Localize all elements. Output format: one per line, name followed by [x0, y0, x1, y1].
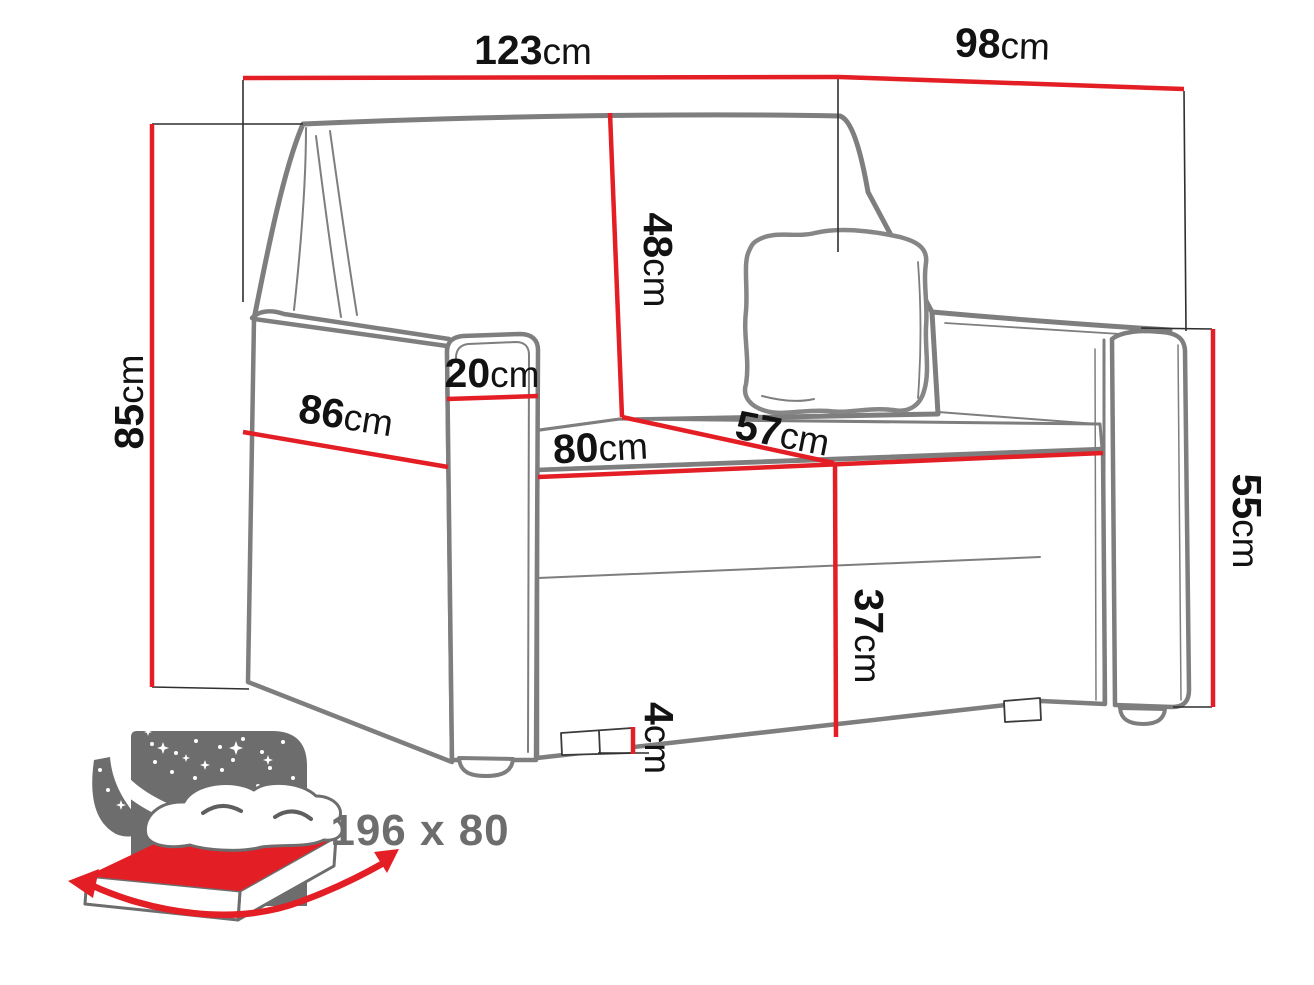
dimension-label-armrest-width: 20cm — [445, 350, 540, 396]
dim-line-total-width — [243, 77, 839, 78]
sofa-line-art — [248, 115, 1189, 776]
bed-size-label: 196 x 80 — [330, 806, 509, 855]
tick-armheight-top — [1141, 328, 1212, 329]
front-mech-leg-divider — [599, 731, 600, 754]
front-mech-leg — [561, 728, 633, 755]
dimension-label-armrest-height: 55cm — [1224, 474, 1270, 569]
dimension-label-seat-width: 80cm — [552, 422, 649, 473]
dimension-label-backrest-height: 48cm — [635, 213, 681, 308]
dimension-label-total-width: 123cm — [474, 27, 592, 73]
dim-line-seat-height — [835, 463, 836, 737]
dimension-label-seat-height: 37cm — [846, 589, 892, 684]
dimension-label-total-depth: 98cm — [954, 19, 1050, 68]
right-mech-leg — [1004, 698, 1041, 722]
pillow — [745, 230, 927, 413]
right-armrest-body — [1112, 331, 1189, 707]
diagram-canvas: 123cm 98cm 85cm 48cm 20cm 86cm 80cm 57cm… — [0, 0, 1314, 985]
left-round-foot — [459, 758, 513, 776]
right-round-foot — [1120, 708, 1165, 724]
tick-height-bottom — [152, 687, 249, 689]
sofa-dimension-diagram: 123cm 98cm 85cm 48cm 20cm 86cm 80cm 57cm… — [0, 0, 1314, 985]
dimension-label-leg-height: 4cm — [636, 702, 682, 774]
left-side-panel — [248, 319, 452, 762]
right-armrest-inner-line — [1095, 349, 1096, 700]
dimension-label-total-height: 85cm — [106, 355, 152, 450]
ext-depth-right — [1184, 91, 1186, 331]
dim-line-armrest-width — [447, 396, 538, 399]
right-armrest-top-edge — [932, 312, 1170, 330]
dim-line-total-depth — [839, 77, 1184, 89]
